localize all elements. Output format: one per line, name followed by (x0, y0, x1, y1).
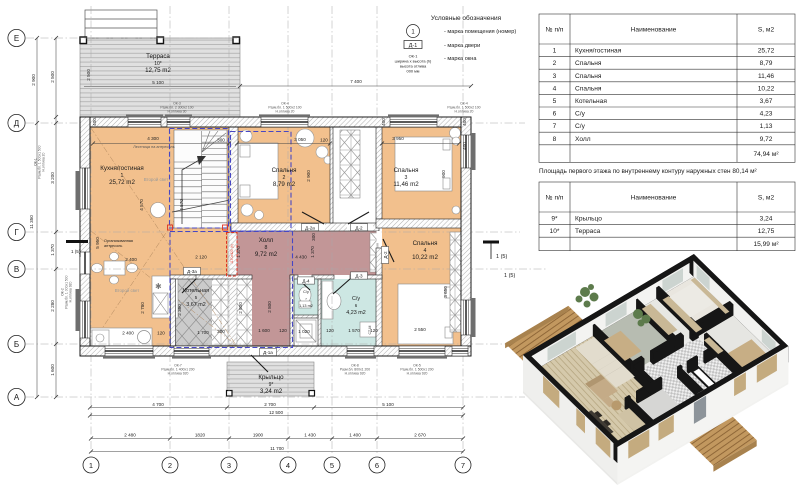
svg-text:Организованная: Организованная (104, 239, 133, 243)
svg-text:1,13 m2: 1,13 m2 (299, 304, 313, 308)
svg-text:3,24 m2: 3,24 m2 (260, 388, 283, 395)
svg-text:Д-4: Д-4 (302, 279, 310, 284)
svg-text:1 370: 1 370 (236, 246, 241, 258)
svg-text:1 (5): 1 (5) (496, 254, 507, 260)
svg-text:7: 7 (461, 461, 465, 470)
svg-text:9,72: 9,72 (760, 136, 773, 143)
svg-text:Терраса: Терраса (575, 228, 601, 235)
svg-text:1 700: 1 700 (197, 330, 209, 335)
svg-text:4 300: 4 300 (147, 136, 159, 141)
svg-text:Н.отлива 20: Н.отлива 20 (455, 110, 474, 114)
svg-text:- марка двери: - марка двери (444, 43, 480, 49)
svg-text:4,23: 4,23 (760, 111, 773, 118)
svg-text:2 480: 2 480 (124, 433, 136, 438)
svg-text:С/у: С/у (575, 123, 586, 130)
svg-text:5: 5 (553, 98, 557, 105)
svg-text:Спальня: Спальня (575, 60, 602, 67)
svg-text:Спальня: Спальня (272, 167, 297, 174)
svg-text:Д-1: Д-1 (409, 43, 417, 49)
svg-text:✱: ✱ (155, 282, 162, 291)
svg-text:12,75 m2: 12,75 m2 (145, 67, 171, 74)
svg-text:3,67: 3,67 (760, 98, 773, 105)
svg-text:2 900: 2 900 (31, 74, 36, 86)
svg-text:1 (5): 1 (5) (71, 249, 81, 254)
svg-text:3: 3 (227, 461, 231, 470)
svg-text:2 500: 2 500 (86, 69, 91, 81)
svg-text:Наименование: Наименование (631, 26, 677, 33)
svg-text:8,79 m2: 8,79 m2 (273, 181, 296, 188)
svg-text:3 650: 3 650 (443, 286, 448, 298)
svg-text:Н.отлива 20: Н.отлива 20 (42, 152, 46, 171)
svg-text:2 500: 2 500 (50, 71, 55, 83)
svg-text:2 400: 2 400 (122, 331, 134, 336)
svg-text:С/у: С/у (352, 296, 360, 302)
svg-text:1 600: 1 600 (50, 364, 55, 376)
svg-text:S, м2: S, м2 (758, 194, 775, 201)
svg-text:Н.отлива 30: Н.отлива 30 (168, 110, 187, 114)
svg-text:120: 120 (157, 331, 165, 336)
svg-text:120: 120 (279, 328, 287, 333)
svg-text:Терраса: Терраса (146, 53, 170, 60)
svg-text:7 400: 7 400 (350, 79, 362, 84)
svg-text:1 370: 1 370 (310, 246, 315, 258)
svg-text:3 050: 3 050 (294, 137, 306, 142)
svg-text:4: 4 (286, 461, 290, 470)
svg-text:120: 120 (370, 328, 378, 333)
svg-text:4 570: 4 570 (179, 199, 184, 211)
svg-text:2 900: 2 900 (306, 170, 311, 182)
svg-text:1 400: 1 400 (349, 433, 361, 438)
svg-text:400: 400 (462, 142, 467, 150)
svg-text:1 570: 1 570 (348, 328, 360, 333)
svg-text:А: А (14, 393, 20, 402)
svg-text:11,46 m2: 11,46 m2 (393, 181, 419, 188)
svg-text:2 360: 2 360 (177, 304, 182, 316)
svg-text:11 350: 11 350 (29, 215, 34, 229)
svg-text:Н.отлива 920: Н.отлива 920 (407, 372, 428, 376)
svg-text:Спальня: Спальня (394, 167, 419, 174)
svg-text:Холл: Холл (259, 237, 274, 244)
svg-text:5 950: 5 950 (95, 237, 100, 249)
svg-text:1: 1 (89, 461, 93, 470)
svg-text:1 600: 1 600 (258, 328, 270, 333)
svg-text:25,72 m2: 25,72 m2 (109, 179, 135, 186)
svg-text:1 020: 1 020 (298, 329, 310, 334)
svg-text:400: 400 (462, 118, 467, 126)
svg-text:74,94 м²: 74,94 м² (753, 151, 779, 158)
svg-text:300: 300 (217, 138, 225, 143)
svg-text:7: 7 (553, 123, 557, 130)
svg-text:6: 6 (375, 461, 379, 470)
svg-text:2 670: 2 670 (414, 433, 426, 438)
svg-text:S, м2: S, м2 (758, 26, 775, 33)
svg-text:12,75: 12,75 (758, 228, 775, 235)
svg-text:400: 400 (92, 118, 97, 126)
svg-text:2 800: 2 800 (267, 301, 272, 313)
svg-text:12 500: 12 500 (269, 410, 283, 415)
svg-text:Н.отлива 920: Н.отлива 920 (69, 281, 73, 302)
svg-text:1 370: 1 370 (50, 244, 55, 256)
svg-text:Котельная: Котельная (575, 98, 607, 105)
svg-text:10,22: 10,22 (758, 85, 775, 92)
svg-text:2 400: 2 400 (125, 257, 137, 262)
svg-text:Н.отлива 920: Н.отлива 920 (345, 372, 366, 376)
svg-text:11 700: 11 700 (270, 446, 284, 451)
svg-text:15,99 м²: 15,99 м² (753, 241, 779, 248)
svg-text:Спальня: Спальня (413, 240, 438, 247)
svg-text:1: 1 (553, 48, 557, 55)
svg-text:Второй свет: Второй свет (115, 288, 140, 293)
svg-text:Спальня: Спальня (575, 73, 602, 80)
svg-text:Е: Е (14, 34, 19, 43)
svg-text:Д-1а: Д-1а (263, 350, 273, 355)
svg-text:8,79: 8,79 (760, 60, 773, 67)
svg-text:120: 120 (320, 138, 328, 143)
svg-text:С/у: С/у (575, 111, 586, 118)
svg-text:№ п/п: № п/п (546, 194, 564, 201)
svg-text:Крыльцо: Крыльцо (575, 216, 602, 223)
svg-text:400: 400 (381, 118, 386, 126)
svg-text:2 280: 2 280 (50, 300, 55, 312)
svg-text:Д-2: Д-2 (355, 225, 363, 230)
svg-text:Д-2а: Д-2а (305, 225, 315, 230)
svg-text:В: В (14, 265, 19, 274)
svg-text:2 550: 2 550 (414, 327, 426, 332)
svg-text:3,24: 3,24 (760, 216, 773, 223)
svg-text:Г: Г (14, 228, 19, 237)
svg-text:Н.отлива 920: Н.отлива 920 (168, 372, 189, 376)
svg-text:Д-3: Д-3 (355, 274, 363, 279)
svg-text:Спальня: Спальня (575, 85, 602, 92)
svg-text:5 100: 5 100 (152, 80, 164, 85)
svg-text:11,46: 11,46 (758, 73, 774, 80)
svg-text:3: 3 (553, 73, 557, 80)
svg-text:5: 5 (330, 461, 334, 470)
svg-text:10*: 10* (550, 228, 560, 235)
svg-text:Второй свет: Второй свет (144, 177, 169, 182)
svg-text:5 100: 5 100 (382, 402, 394, 407)
svg-text:№ п/п: № п/п (546, 26, 564, 33)
svg-text:10,22 m2: 10,22 m2 (412, 254, 438, 261)
svg-text:1900: 1900 (253, 433, 264, 438)
svg-text:антресоль: антресоль (104, 244, 122, 248)
svg-text:2 700: 2 700 (264, 402, 276, 407)
svg-text:Условные обозначения: Условные обозначения (431, 14, 502, 22)
svg-text:Д-2: Д-2 (383, 251, 388, 259)
svg-text:Д: Д (14, 119, 20, 128)
svg-text:2 120: 2 120 (195, 255, 207, 260)
svg-text:1170х420 (h): 1170х420 (h) (230, 244, 234, 264)
svg-text:120: 120 (326, 328, 334, 333)
svg-text:3,67 m2: 3,67 m2 (186, 302, 205, 308)
svg-text:1820: 1820 (195, 433, 206, 438)
svg-text:Котельная: Котельная (183, 288, 209, 294)
svg-text:4 570: 4 570 (139, 199, 144, 211)
svg-text:С/у: С/у (303, 290, 309, 294)
svg-text:6: 6 (553, 111, 557, 118)
svg-text:1 (5): 1 (5) (504, 273, 515, 279)
svg-text:25,72: 25,72 (758, 48, 775, 55)
svg-text:Холл: Холл (575, 136, 591, 143)
svg-text:900: 900 (441, 170, 446, 178)
svg-text:4 430: 4 430 (295, 255, 307, 260)
svg-text:000 мм: 000 мм (407, 69, 420, 74)
svg-text:300: 300 (311, 233, 316, 241)
svg-text:300: 300 (217, 329, 225, 334)
svg-text:Д-3а: Д-3а (187, 269, 197, 274)
svg-text:1 430: 1 430 (304, 433, 316, 438)
svg-text:- марка помещения (номер): - марка помещения (номер) (444, 29, 516, 35)
svg-text:3 950: 3 950 (392, 136, 404, 141)
svg-text:Наименование: Наименование (631, 194, 677, 201)
svg-text:9,72 m2: 9,72 m2 (255, 251, 278, 258)
svg-text:4 700: 4 700 (152, 402, 164, 407)
svg-text:2 800: 2 800 (238, 302, 243, 314)
svg-text:2 780: 2 780 (140, 302, 145, 314)
svg-text:2: 2 (168, 461, 172, 470)
svg-text:Кухня/гостиная: Кухня/гостиная (575, 48, 622, 55)
svg-text:Площадь первого этажа по внутр: Площадь первого этажа по внутреннему кон… (539, 168, 757, 175)
svg-text:4,23 m2: 4,23 m2 (346, 310, 365, 316)
svg-text:- марка окна: - марка окна (444, 56, 477, 62)
svg-text:Б: Б (14, 340, 19, 349)
svg-text:4: 4 (553, 85, 557, 92)
svg-text:Лестница на антресоль: Лестница на антресоль (133, 145, 174, 149)
svg-text:Н.отлива 20: Н.отлива 20 (276, 110, 295, 114)
svg-text:8: 8 (553, 136, 557, 143)
svg-text:9*: 9* (551, 216, 558, 223)
svg-text:3 200: 3 200 (50, 172, 55, 184)
svg-text:1,13: 1,13 (760, 123, 773, 130)
svg-text:Кухня/гостиная: Кухня/гостиная (100, 165, 143, 172)
svg-text:Крыльцо: Крыльцо (258, 374, 284, 381)
svg-text:2: 2 (553, 60, 557, 67)
